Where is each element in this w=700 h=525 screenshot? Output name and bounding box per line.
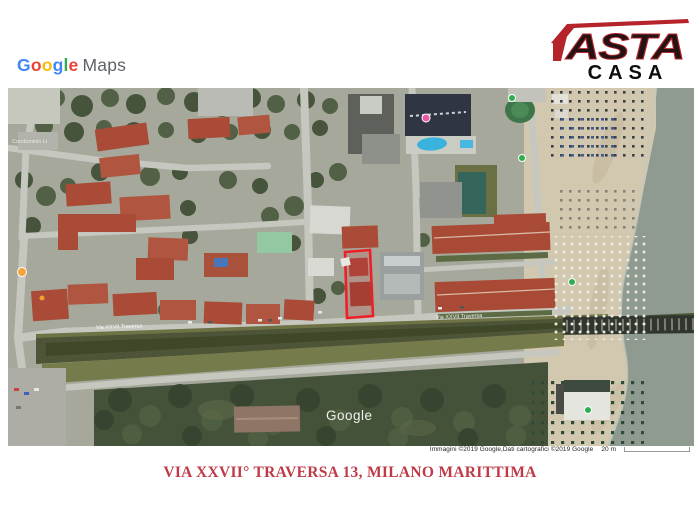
condominio-label: Condominio Li [12,139,47,145]
scale-bar [624,447,690,452]
google-logo-letter: e [69,55,79,75]
google-maps-logo: GoogleMaps [17,55,126,76]
page-title: VIA XXVII° TRAVERSA 13, MILANO MARITTIMA [0,464,700,482]
asta-title: ASTA [565,26,684,67]
parking-area [8,368,66,446]
asta-casa-logo: ASTA CASA [550,16,692,82]
scale-label: 20 m [601,446,616,453]
asta-subtitle: CASA [588,62,669,82]
google-watermark: Google [326,408,373,423]
google-logo-letter: G [17,55,31,75]
green-marker-icon [569,279,576,286]
google-logo-letter: o [42,55,53,75]
green-marker-icon [585,407,592,414]
attribution-text: Immagini ©2019 Google,Dati cartografici … [430,446,593,453]
maps-wordmark: Maps [82,55,126,75]
map-attribution: Immagini ©2019 Google,Dati cartografici … [8,446,690,453]
google-logo-letter: g [53,55,64,75]
green-marker-icon [509,95,516,102]
pink-marker-icon [422,114,430,122]
satellite-map: Condominio Li Via XXVII Traversa Via XXV… [8,88,694,446]
green-marker-icon [519,155,526,162]
orange-marker-icon [18,268,27,277]
google-logo-letter: o [31,55,42,75]
beach-club-buildings [556,380,610,420]
